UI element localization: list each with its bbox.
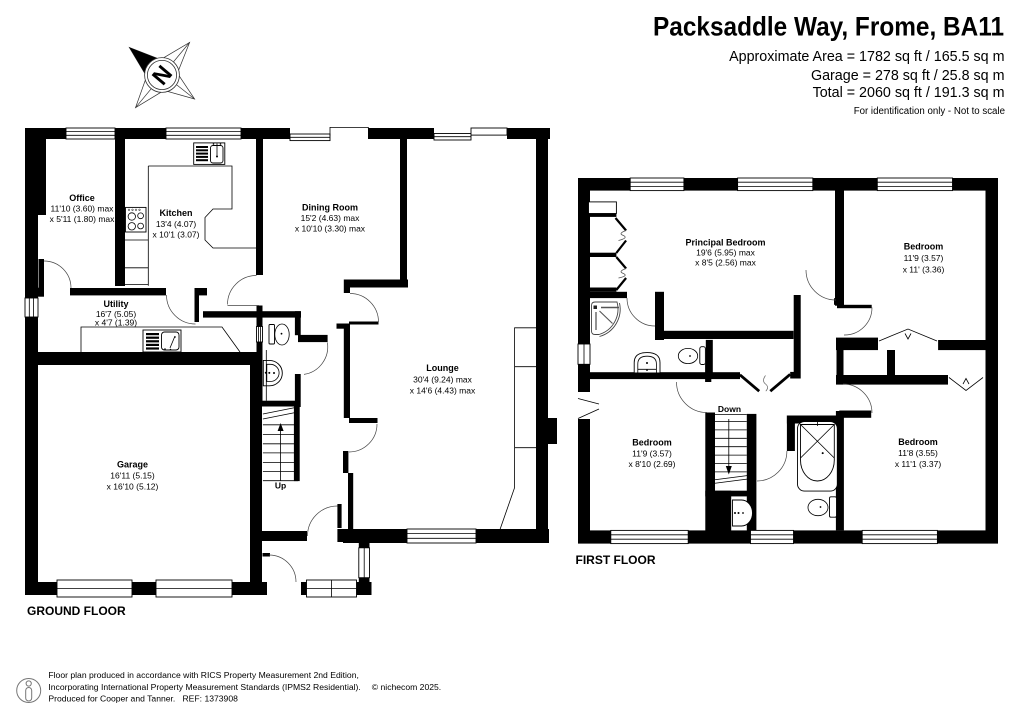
svg-text:Packsaddle Way, Frome, BA11: Packsaddle Way, Frome, BA11 bbox=[653, 11, 1004, 41]
svg-text:Bedroom: Bedroom bbox=[898, 437, 938, 447]
svg-text:x 10'10 (3.30) max: x 10'10 (3.30) max bbox=[295, 224, 366, 234]
svg-text:x 10'1 (3.07): x 10'1 (3.07) bbox=[153, 230, 200, 240]
svg-text:Bedroom: Bedroom bbox=[904, 242, 944, 252]
svg-text:Incorporating International Pr: Incorporating International Property Mea… bbox=[48, 682, 360, 692]
svg-text:Produced for Cooper and Tanner: Produced for Cooper and Tanner. REF: 137… bbox=[48, 693, 238, 703]
svg-text:Office: Office bbox=[69, 193, 95, 203]
svg-text:Utility: Utility bbox=[103, 299, 128, 309]
svg-text:x 4'7 (1.39): x 4'7 (1.39) bbox=[95, 318, 137, 328]
svg-text:x 8'5 (2.56) max: x 8'5 (2.56) max bbox=[695, 258, 756, 268]
svg-text:11'9 (3.57): 11'9 (3.57) bbox=[904, 253, 944, 263]
svg-text:Bedroom: Bedroom bbox=[632, 438, 672, 448]
svg-text:30'4 (9.24) max: 30'4 (9.24) max bbox=[413, 375, 473, 385]
svg-text:GROUND FLOOR: GROUND FLOOR bbox=[27, 604, 126, 618]
svg-text:11'8 (3.55): 11'8 (3.55) bbox=[898, 448, 938, 458]
svg-text:Garage: Garage bbox=[117, 460, 148, 470]
svg-text:x 14'6 (4.43) max: x 14'6 (4.43) max bbox=[410, 386, 476, 396]
svg-text:11'9 (3.57): 11'9 (3.57) bbox=[632, 449, 672, 459]
svg-text:16'11 (5.15): 16'11 (5.15) bbox=[110, 471, 155, 481]
svg-text:Lounge: Lounge bbox=[426, 363, 459, 373]
svg-text:Garage = 278 sq ft / 25.8 sq m: Garage = 278 sq ft / 25.8 sq m bbox=[811, 68, 1005, 84]
svg-text:15'2 (4.63) max: 15'2 (4.63) max bbox=[301, 213, 361, 223]
svg-text:x 5'11 (1.80) max: x 5'11 (1.80) max bbox=[50, 214, 116, 224]
svg-text:13'4 (4.07): 13'4 (4.07) bbox=[156, 219, 197, 229]
svg-text:x 8'10 (2.69): x 8'10 (2.69) bbox=[629, 459, 676, 469]
svg-text:Up: Up bbox=[275, 481, 286, 491]
svg-text:Dining Room: Dining Room bbox=[302, 203, 358, 213]
svg-text:x 16'10 (5.12): x 16'10 (5.12) bbox=[107, 482, 159, 492]
svg-text:For identification only - Not: For identification only - Not to scale bbox=[854, 106, 1005, 117]
svg-text:x 11' (3.36): x 11' (3.36) bbox=[903, 265, 945, 275]
svg-text:Down: Down bbox=[718, 404, 741, 414]
svg-text:© nichecom 2025.: © nichecom 2025. bbox=[372, 682, 441, 692]
svg-text:Approximate Area = 1782 sq ft: Approximate Area = 1782 sq ft / 165.5 sq… bbox=[729, 49, 1004, 65]
svg-text:x 11'1 (3.37): x 11'1 (3.37) bbox=[895, 459, 942, 469]
svg-text:Principal Bedroom: Principal Bedroom bbox=[685, 238, 765, 248]
svg-text:19'6 (5.95) max: 19'6 (5.95) max bbox=[696, 248, 756, 258]
svg-text:11'10 (3.60) max: 11'10 (3.60) max bbox=[51, 204, 115, 214]
svg-text:Kitchen: Kitchen bbox=[159, 208, 192, 218]
svg-text:FIRST FLOOR: FIRST FLOOR bbox=[576, 553, 656, 567]
svg-text:Total = 2060 sq ft / 191.3 sq: Total = 2060 sq ft / 191.3 sq m bbox=[813, 85, 1005, 101]
svg-text:Floor plan produced in accorda: Floor plan produced in accordance with R… bbox=[48, 670, 359, 680]
